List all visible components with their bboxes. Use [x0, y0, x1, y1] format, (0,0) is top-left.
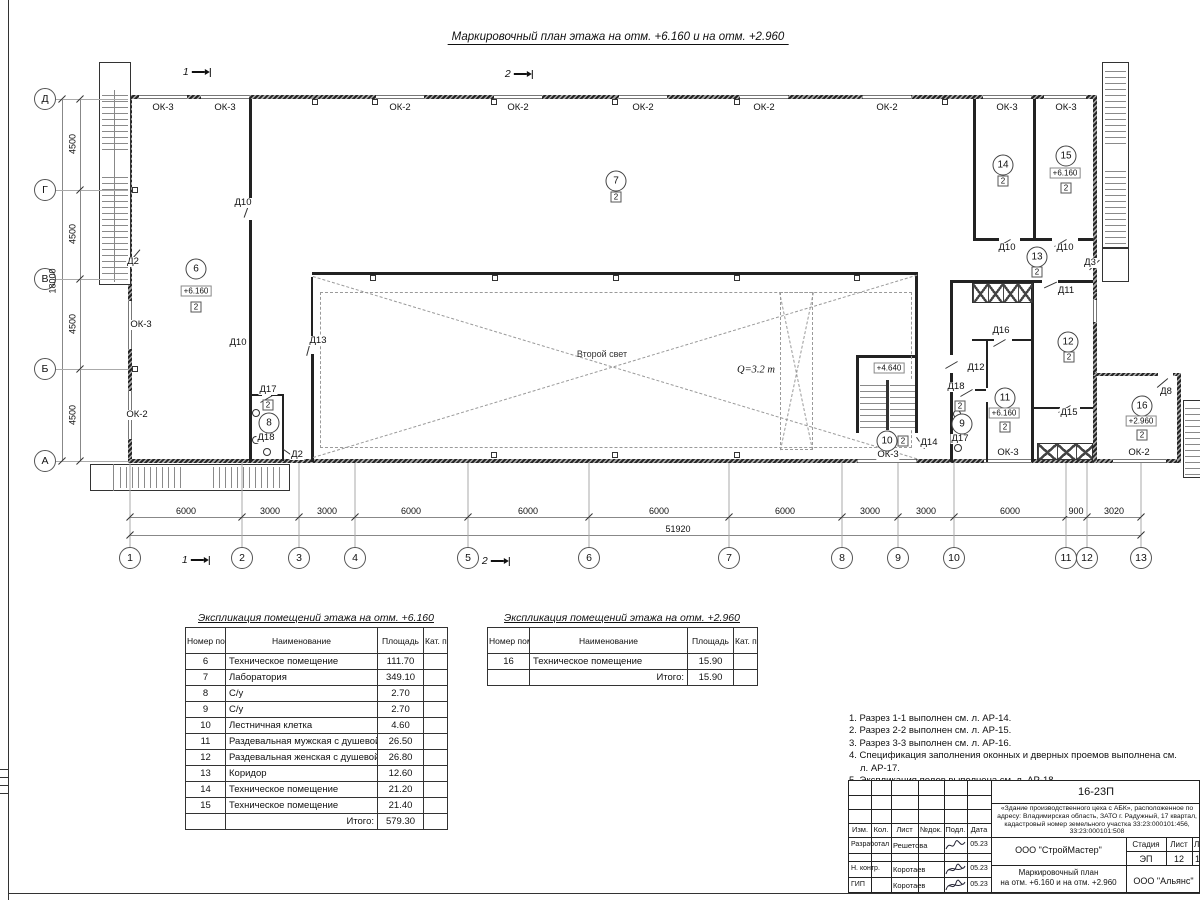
pilaster	[132, 187, 138, 193]
col-header: Площадь	[688, 628, 734, 654]
tb-doc-number: 16-23П	[991, 786, 1200, 798]
partition	[1033, 99, 1036, 238]
window-label: ОК-3	[151, 103, 174, 113]
dimension: 3000	[315, 507, 339, 516]
stair-treads	[1105, 166, 1126, 244]
tb-col-data: Дата	[967, 825, 991, 834]
stair-divider	[113, 464, 114, 491]
dimension: 6000	[647, 507, 671, 516]
axis-bubble: А	[34, 450, 56, 472]
dimension: 3000	[858, 507, 882, 516]
axis-bubble: 9	[887, 547, 909, 569]
axis-bubble: 8	[831, 547, 853, 569]
signature	[945, 862, 966, 877]
table-cell	[186, 814, 226, 830]
table-cell: 11	[186, 734, 226, 750]
table-cell: 15	[186, 798, 226, 814]
window	[619, 95, 667, 99]
table-row: 11Раздевальная мужская с душевой26.50	[186, 734, 448, 750]
note-item: 4. Спецификация заполнения оконных и две…	[849, 750, 1184, 775]
table-cell: 13	[186, 766, 226, 782]
table-cell	[488, 670, 530, 686]
table-cell: С/у	[226, 686, 378, 702]
axis-bubble: Д	[34, 88, 56, 110]
axis-line	[56, 99, 128, 100]
tb-col-podp: Подл.	[944, 825, 967, 834]
window	[740, 95, 788, 99]
axis-line	[1066, 463, 1067, 547]
table-row: 9С/у2.70	[186, 702, 448, 718]
wall	[1093, 322, 1097, 463]
table-cell: 21.20	[378, 782, 424, 798]
window-label: ОК-3	[995, 103, 1018, 113]
door-label: Д18	[256, 433, 275, 443]
door-label: Д3	[1083, 258, 1097, 268]
door-label: Д14	[919, 438, 938, 448]
tb-sheets-value: 1	[1195, 854, 1200, 864]
axis-line	[954, 463, 955, 547]
window	[983, 95, 1031, 99]
axis-line	[242, 463, 243, 547]
table-cell: Лестничная клетка	[226, 718, 378, 734]
table-cell	[424, 718, 448, 734]
table-cell: 16	[488, 654, 530, 670]
signature	[945, 839, 966, 852]
pilaster	[734, 452, 740, 458]
axis-bubble: 13	[1130, 547, 1152, 569]
partition	[986, 341, 988, 388]
window-label: ОК-2	[875, 103, 898, 113]
fixture	[954, 444, 962, 452]
door-label: Д8	[1159, 387, 1173, 397]
partition	[249, 99, 252, 205]
window	[1113, 459, 1166, 463]
axis-bubble: 7	[718, 547, 740, 569]
room-note: 2	[955, 401, 966, 412]
window	[1093, 300, 1097, 322]
col-header: Кат. пом.	[734, 628, 758, 654]
pilaster	[734, 99, 740, 105]
room-elevation: +6.160	[989, 408, 1020, 419]
window-label: ОК-2	[388, 103, 411, 113]
axis-bubble: 5	[457, 547, 479, 569]
axis-bubble: 1	[119, 547, 141, 569]
col-header: Номер помещ.	[186, 628, 226, 654]
dimension: 4500	[69, 132, 78, 156]
dimension: 6000	[174, 507, 198, 516]
stair-treads	[1105, 66, 1126, 148]
room-number: 6	[186, 259, 207, 280]
note-item: 3. Разрез 3-3 выполнен см. л. АР-16.	[849, 738, 1184, 750]
room-number: 16	[1132, 396, 1153, 417]
axis-bubble: 4	[344, 547, 366, 569]
room-elevation: +6.160	[181, 286, 212, 297]
room-note: 2	[611, 192, 622, 203]
dimension: 4500	[69, 222, 78, 246]
tb-col-ndok: №док.	[918, 825, 944, 834]
window	[376, 95, 424, 99]
partition	[1020, 238, 1052, 241]
partition	[1080, 407, 1093, 409]
table-cell	[424, 670, 448, 686]
dimension: 6000	[399, 507, 423, 516]
door-label: Д10	[228, 338, 247, 348]
pilaster	[491, 99, 497, 105]
axis-line	[729, 463, 730, 547]
room-number: 13	[1027, 247, 1048, 268]
partition	[311, 354, 314, 462]
partition	[311, 277, 313, 340]
tb-date: 05.23	[967, 841, 991, 848]
axis-bubble: Б	[34, 358, 56, 380]
door-label: Д18	[946, 382, 965, 392]
partition	[249, 220, 252, 462]
tb-stage-value: ЭП	[1126, 854, 1166, 864]
table-row: 14Техническое помещение21.20	[186, 782, 448, 798]
partition	[1012, 339, 1032, 341]
title-block: Изм. Кол. Лист №док. Подл. Дата Разработ…	[848, 780, 1200, 893]
room-note: 2	[1061, 183, 1072, 194]
stair-divider	[886, 380, 889, 430]
table-cell	[424, 702, 448, 718]
table-cell	[734, 654, 758, 670]
table-cell: 4.60	[378, 718, 424, 734]
note-item: 1. Разрез 1-1 выполнен см. л. АР-14.	[849, 713, 1184, 725]
partition	[915, 275, 918, 357]
tb-col-kol: Кол.	[871, 825, 891, 834]
table-cell: Техническое помещение	[226, 654, 378, 670]
table-cell	[424, 750, 448, 766]
stair-mid-treads	[890, 380, 915, 430]
door-label: Д10	[233, 198, 252, 208]
window	[139, 95, 187, 99]
table-cell: Итого:	[226, 814, 378, 830]
room-number: 8	[259, 413, 280, 434]
stair-treads	[208, 467, 282, 488]
partition	[950, 283, 953, 355]
axis-bubble: 6	[578, 547, 600, 569]
table-cell: Техническое помещение	[226, 782, 378, 798]
partition	[915, 357, 918, 433]
pilaster	[491, 452, 497, 458]
tb-date: 05.23	[967, 881, 991, 888]
table-row: 12Раздевальная женская с душевой26.80	[186, 750, 448, 766]
table-row: 16Техническое помещение15.90	[488, 654, 758, 670]
section-mark: 2	[505, 68, 533, 80]
room-number: 15	[1056, 146, 1077, 167]
stair-treads	[115, 467, 186, 488]
axis-bubble: 10	[943, 547, 965, 569]
stair-treads	[102, 172, 128, 282]
table-row: 6Техническое помещение111.70	[186, 654, 448, 670]
table-cell: 26.80	[378, 750, 424, 766]
room-note: 2	[191, 302, 202, 313]
table-cell: 21.40	[378, 798, 424, 814]
room-note: 2	[1137, 430, 1148, 441]
axis-line	[56, 190, 128, 191]
pilaster	[854, 275, 860, 281]
window	[494, 95, 542, 99]
dim-line-left-total	[62, 99, 63, 461]
table-cell: Итого:	[530, 670, 688, 686]
wall	[1093, 373, 1158, 376]
partition	[975, 389, 986, 391]
plan-text: Второй свет	[577, 349, 627, 359]
plan-text: Q=3.2 т	[737, 365, 775, 376]
pilaster	[613, 275, 619, 281]
door-label: Д10	[997, 243, 1016, 253]
table-cell: 2.70	[378, 702, 424, 718]
table-total-row: Итого:15.90	[488, 670, 758, 686]
room-number: 9	[952, 414, 973, 435]
section-mark: 1	[183, 66, 211, 78]
table-cell: 26.50	[378, 734, 424, 750]
table-cell: 10	[186, 718, 226, 734]
table-row: 8С/у2.70	[186, 686, 448, 702]
tb-sheet-value: 12	[1166, 854, 1192, 864]
axis-line	[589, 463, 590, 547]
tb-sheet-label: Лист	[1166, 840, 1192, 849]
table-cell	[424, 686, 448, 702]
room-number: 11	[995, 388, 1016, 409]
section-mark: 2	[482, 555, 510, 567]
table-cell: С/у	[226, 702, 378, 718]
door-label: Д13	[308, 336, 327, 346]
room-note: 2	[1032, 267, 1043, 278]
axis-line	[468, 463, 469, 547]
window-label: ОК-2	[752, 103, 775, 113]
partition	[1078, 238, 1093, 241]
window-label: ОК-2	[631, 103, 654, 113]
table-title-1: Экспликация помещений этажа на отм. +6.1…	[198, 612, 434, 624]
door-swing	[945, 361, 958, 369]
table-cell: Техническое помещение	[530, 654, 688, 670]
table-cell: 15.90	[688, 670, 734, 686]
tb-stage-label: Стадия	[1126, 840, 1166, 849]
tb-org: ООО "СтройМастер"	[991, 845, 1126, 855]
table-row: 15Техническое помещение21.40	[186, 798, 448, 814]
dimension: 3000	[258, 507, 282, 516]
col-header: Наименование	[226, 628, 378, 654]
table-cell: 14	[186, 782, 226, 798]
table-cell: Лаборатория	[226, 670, 378, 686]
pilaster	[492, 275, 498, 281]
table-cell	[424, 814, 448, 830]
door-swing	[1044, 282, 1057, 289]
explication-table-6160: Номер помещ. Наименование Площадь Кат. п…	[185, 627, 448, 830]
table-row: 13Коридор12.60	[186, 766, 448, 782]
table-cell: 12.60	[378, 766, 424, 782]
dimension: 3020	[1102, 507, 1126, 516]
room-note: 2	[998, 176, 1009, 187]
partition	[1031, 283, 1034, 462]
dimension: 4500	[69, 403, 78, 427]
table-cell: 8	[186, 686, 226, 702]
dim-line-total	[130, 535, 1141, 536]
tb-org2: ООО "Альянс"	[1126, 876, 1200, 886]
door-label: Д15	[1059, 408, 1078, 418]
table-row: 7Лаборатория349.10	[186, 670, 448, 686]
axis-line	[898, 463, 899, 547]
window	[984, 459, 1032, 463]
window	[1044, 95, 1086, 99]
stair-divider	[114, 90, 115, 282]
note-item: 2. Разрез 2-2 выполнен см. л. АР-15.	[849, 725, 1184, 737]
dimension: 3000	[914, 507, 938, 516]
table-cell	[424, 798, 448, 814]
partition	[973, 99, 976, 238]
pilaster	[132, 366, 138, 372]
drawing-sheet: { "title": "Маркировочный план этажа на …	[0, 0, 1200, 900]
tb-name: Коротаев	[893, 881, 943, 890]
table-row: 10Лестничная клетка4.60	[186, 718, 448, 734]
shaft-hatch	[972, 283, 1033, 303]
door-label: Д17	[258, 385, 277, 395]
room-number: 10	[877, 431, 898, 452]
tb-role: Н. контр.	[851, 865, 891, 872]
axis-line	[842, 463, 843, 547]
room-elevation: +6.160	[1050, 168, 1081, 179]
window-label: ОК-3	[876, 450, 899, 460]
dimension: 900	[1066, 507, 1085, 516]
table-cell: Раздевальная мужская с душевой	[226, 734, 378, 750]
pilaster	[370, 275, 376, 281]
tb-col-izm: Изм.	[849, 825, 871, 834]
door-label: Д2	[290, 450, 304, 460]
wall	[1177, 373, 1181, 463]
pilaster	[612, 452, 618, 458]
dimension-total: 18000	[49, 266, 58, 295]
notes-list: 1. Разрез 1-1 выполнен см. л. АР-14.2. Р…	[849, 713, 1184, 787]
door-label: Д11	[1057, 286, 1075, 296]
table-cell: Техническое помещение	[226, 798, 378, 814]
pilaster	[312, 99, 318, 105]
dimension-total: 51920	[663, 525, 692, 534]
pilaster	[734, 275, 740, 281]
explication-table-2960: Номер помещ. Наименование Площадь Кат. п…	[487, 627, 758, 686]
axis-line	[56, 279, 128, 280]
axis-bubble: 2	[231, 547, 253, 569]
fixture	[263, 448, 271, 456]
axis-line	[56, 369, 128, 370]
table-cell: Раздевальная женская с душевой	[226, 750, 378, 766]
axis-bubble: 3	[288, 547, 310, 569]
tb-role: Разработал	[851, 841, 891, 848]
room-number: 12	[1058, 332, 1079, 353]
room-elevation: +2.960	[1126, 416, 1157, 427]
tb-col-list: Лист	[891, 825, 918, 834]
pilaster	[942, 99, 948, 105]
stair-treads	[1185, 403, 1200, 475]
table-cell: 9	[186, 702, 226, 718]
partition	[1058, 280, 1093, 283]
window-label: ОК-3	[996, 448, 1019, 458]
door-label: Д10	[1055, 243, 1074, 253]
fixture	[252, 409, 260, 417]
table-cell	[424, 654, 448, 670]
plan-text: +4.640	[874, 363, 905, 374]
room-note: 2	[1000, 422, 1011, 433]
table-cell: 7	[186, 670, 226, 686]
tb-role: ГИП	[851, 881, 891, 888]
door-label: Д16	[991, 326, 1010, 336]
table-cell	[734, 670, 758, 686]
window-label: ОК-2	[125, 410, 148, 420]
window-label: ОК-3	[129, 320, 152, 330]
signature	[945, 878, 966, 893]
stair-mid-treads	[860, 380, 886, 430]
partition	[973, 238, 999, 241]
door-label: Д2	[126, 257, 140, 267]
dimension: 4500	[69, 312, 78, 336]
room-note: 2	[1064, 352, 1075, 363]
window-label: ОК-3	[213, 103, 236, 113]
col-header: Кат. пом.	[424, 628, 448, 654]
table-cell	[424, 782, 448, 798]
pilaster	[612, 99, 618, 105]
room-note: 2	[898, 436, 909, 447]
tb-subtitle: Маркировочный план на отм. +6.160 и на о…	[991, 868, 1126, 887]
partition	[1033, 407, 1060, 409]
dimension: 6000	[773, 507, 797, 516]
axis-line	[1087, 463, 1088, 547]
door-label: Д17	[950, 434, 969, 444]
table-cell	[424, 766, 448, 782]
table-cell: 15.90	[688, 654, 734, 670]
window-label: ОК-2	[1127, 448, 1150, 458]
window	[201, 95, 249, 99]
dimension: 6000	[516, 507, 540, 516]
col-header: Наименование	[530, 628, 688, 654]
window	[863, 95, 911, 99]
table-cell: 349.10	[378, 670, 424, 686]
void-outline	[320, 292, 912, 448]
table-cell: 2.70	[378, 686, 424, 702]
col-header: Номер помещ.	[488, 628, 530, 654]
dim-line	[130, 517, 1141, 518]
shaft-hatch	[1037, 443, 1093, 460]
axis-line	[56, 461, 128, 462]
dim-line-left	[80, 99, 81, 461]
table-cell: Коридор	[226, 766, 378, 782]
axis-bubble: 11	[1055, 547, 1077, 569]
section-mark: 1	[182, 554, 210, 566]
axis-bubble: 12	[1076, 547, 1098, 569]
tb-name: Коротаев	[893, 865, 943, 874]
dimension: 6000	[998, 507, 1022, 516]
stair-landing	[1102, 248, 1129, 282]
room-note: 2	[263, 400, 274, 411]
axis-bubble: Г	[34, 179, 56, 201]
tb-name: Решетова	[893, 841, 943, 850]
door-swing	[993, 339, 1006, 347]
table-cell: 579.30	[378, 814, 424, 830]
table-total-row: Итого:579.30	[186, 814, 448, 830]
axis-line	[299, 463, 300, 547]
table-cell	[424, 734, 448, 750]
room-number: 14	[993, 155, 1014, 176]
tb-description: «Здание производственного цеха с АБК», р…	[995, 805, 1199, 836]
window-label: ОК-2	[506, 103, 529, 113]
room-number: 7	[606, 171, 627, 192]
table-cell: 111.70	[378, 654, 424, 670]
window-label: ОК-3	[1054, 103, 1077, 113]
tb-sheets-label: Лис	[1194, 840, 1200, 849]
axis-line	[355, 463, 356, 547]
partition	[972, 339, 994, 341]
tb-date: 05.23	[967, 865, 991, 872]
wall	[1093, 292, 1097, 300]
